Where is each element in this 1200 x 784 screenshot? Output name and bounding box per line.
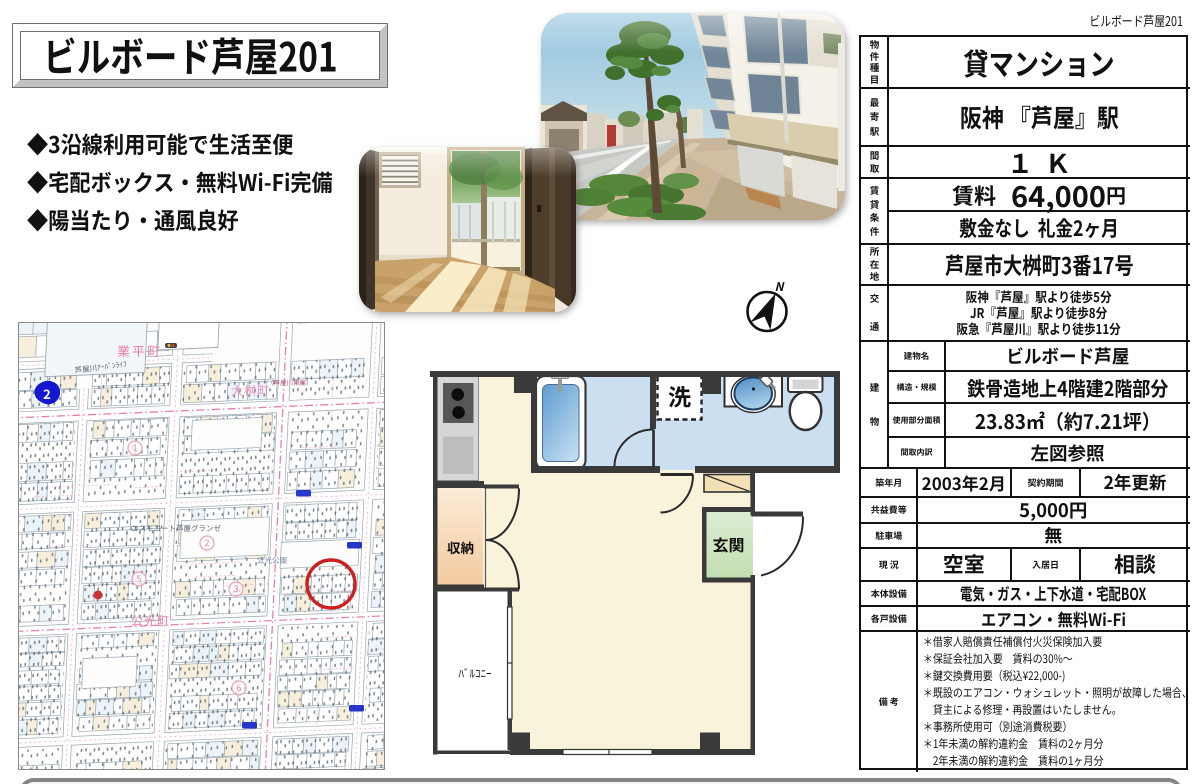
- svg-text:公光町: 公光町: [131, 612, 170, 629]
- svg-text:1: 1: [133, 441, 138, 454]
- svg-text:6: 6: [237, 681, 242, 694]
- svg-text:5: 5: [137, 572, 142, 585]
- svg-text:公光公園: 公光公園: [257, 555, 287, 566]
- svg-text:N: N: [775, 278, 786, 295]
- svg-text:コスモコート芦屋グランゼ: コスモコート芦屋グランゼ: [131, 523, 221, 534]
- svg-text:3: 3: [234, 582, 239, 595]
- svg-text:収納: 収納: [447, 537, 474, 557]
- svg-text:（芦屋川東線）: （芦屋川東線）: [267, 377, 313, 387]
- svg-text:玄関: 玄関: [712, 532, 744, 556]
- svg-text:2: 2: [43, 384, 51, 403]
- svg-text:洗: 洗: [668, 379, 691, 413]
- svg-text:ﾊﾞﾙｺﾆｰ: ﾊﾞﾙｺﾆｰ: [459, 666, 492, 682]
- svg-text:大桝町: 大桝町: [231, 382, 270, 399]
- svg-text:2: 2: [205, 536, 210, 549]
- svg-text:業平町: 業平町: [117, 341, 162, 360]
